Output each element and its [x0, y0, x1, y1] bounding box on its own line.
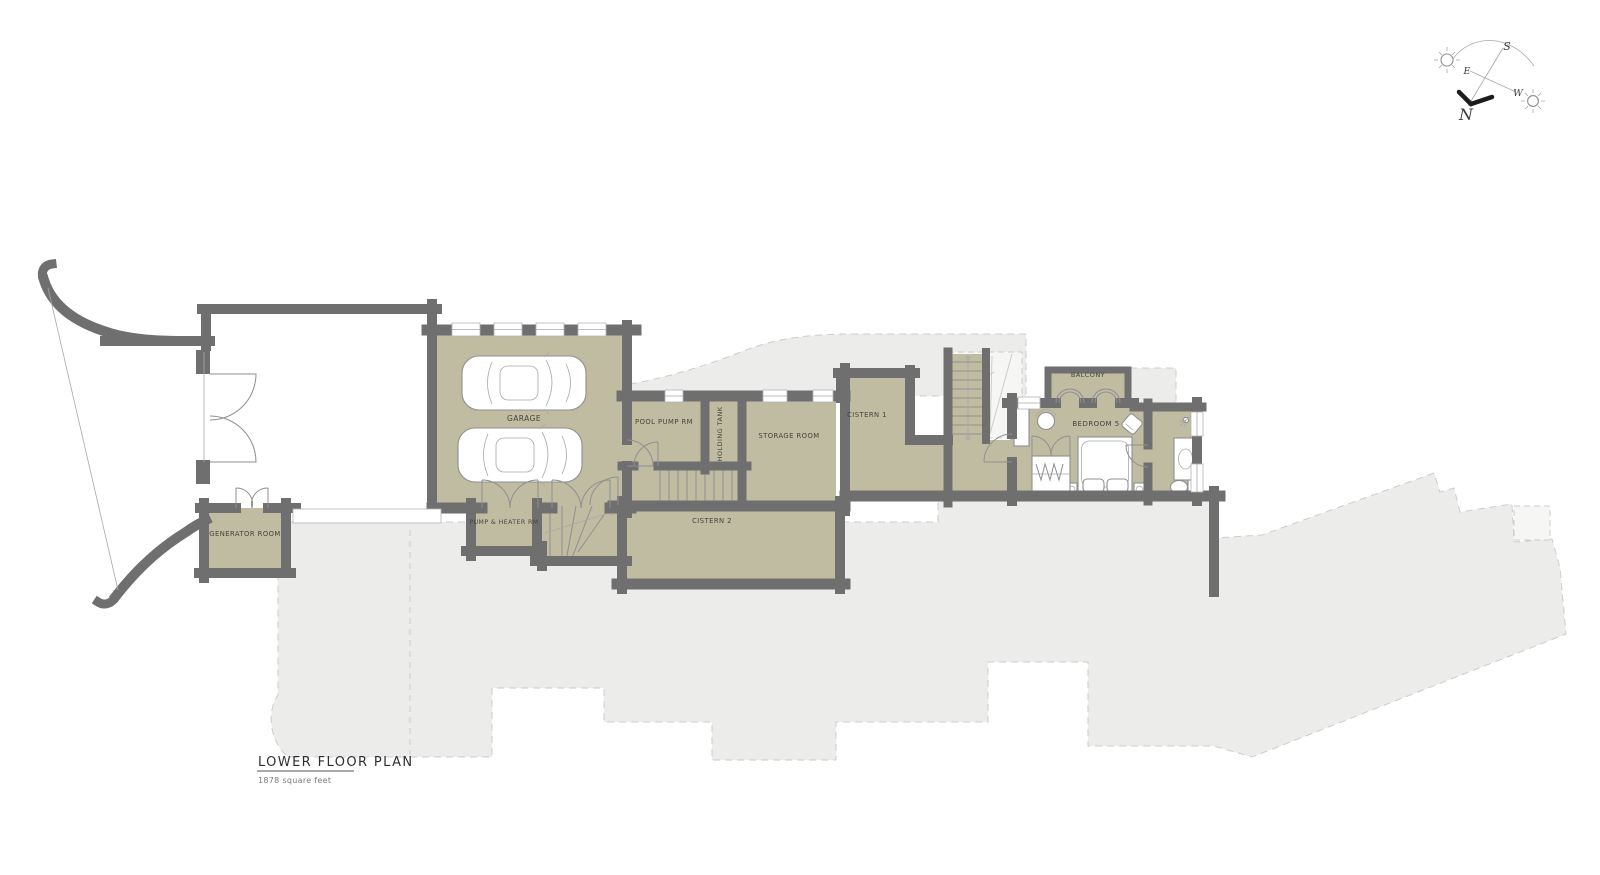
- room-label-pump-heater: PUMP & HEATER RM: [469, 519, 538, 526]
- page-title: LOWER FLOOR PLAN: [258, 755, 414, 770]
- compass-north: N: [1458, 105, 1474, 124]
- car-icon: [458, 424, 582, 486]
- room-label-cistern1: CISTERN 1: [847, 411, 887, 419]
- floor-plan-page: GARAGE GENERATOR ROOM POOL PUMP RM HOLDI…: [0, 0, 1600, 875]
- planter-strip: [293, 509, 441, 523]
- title-block: LOWER FLOOR PLAN 1878 square feet: [257, 755, 414, 785]
- entry-court-floor: [206, 312, 428, 510]
- curved-wall-upper: [44, 280, 178, 341]
- compass-west: W: [1513, 88, 1524, 99]
- car-icon: [462, 352, 586, 414]
- floor-plan-drawing: GARAGE GENERATOR ROOM POOL PUMP RM HOLDI…: [0, 0, 1600, 875]
- room-label-pool-pump: POOL PUMP RM: [635, 418, 693, 426]
- room-label-balcony: BALCONY: [1071, 371, 1105, 379]
- page-subtitle: 1878 square feet: [258, 776, 331, 785]
- room-label-holding-tank: HOLDING TANK: [716, 406, 724, 461]
- closet-hangers: [1032, 456, 1070, 496]
- storage-room-floor: [744, 401, 836, 501]
- hall-floor: [910, 440, 1012, 498]
- room-label-cistern2: CISTERN 2: [692, 517, 732, 525]
- bed-icon: [1078, 437, 1132, 496]
- compass-east: E: [1463, 66, 1471, 77]
- room-label-bedroom5: BEDROOM 5: [1072, 420, 1119, 428]
- compass-rose: S E W N: [1434, 40, 1545, 124]
- generator-room-floor: [208, 508, 284, 575]
- room-label-garage: GARAGE: [507, 414, 541, 423]
- sun-icon: [1434, 47, 1460, 73]
- sun-icon: [1521, 89, 1545, 113]
- compass-south: S: [1503, 40, 1511, 53]
- room-label-storage: STORAGE ROOM: [758, 432, 819, 440]
- ghost-terrace-patch: [1514, 506, 1550, 540]
- curved-wall-lower: [116, 520, 206, 596]
- room-label-generator: GENERATOR ROOM: [209, 530, 280, 538]
